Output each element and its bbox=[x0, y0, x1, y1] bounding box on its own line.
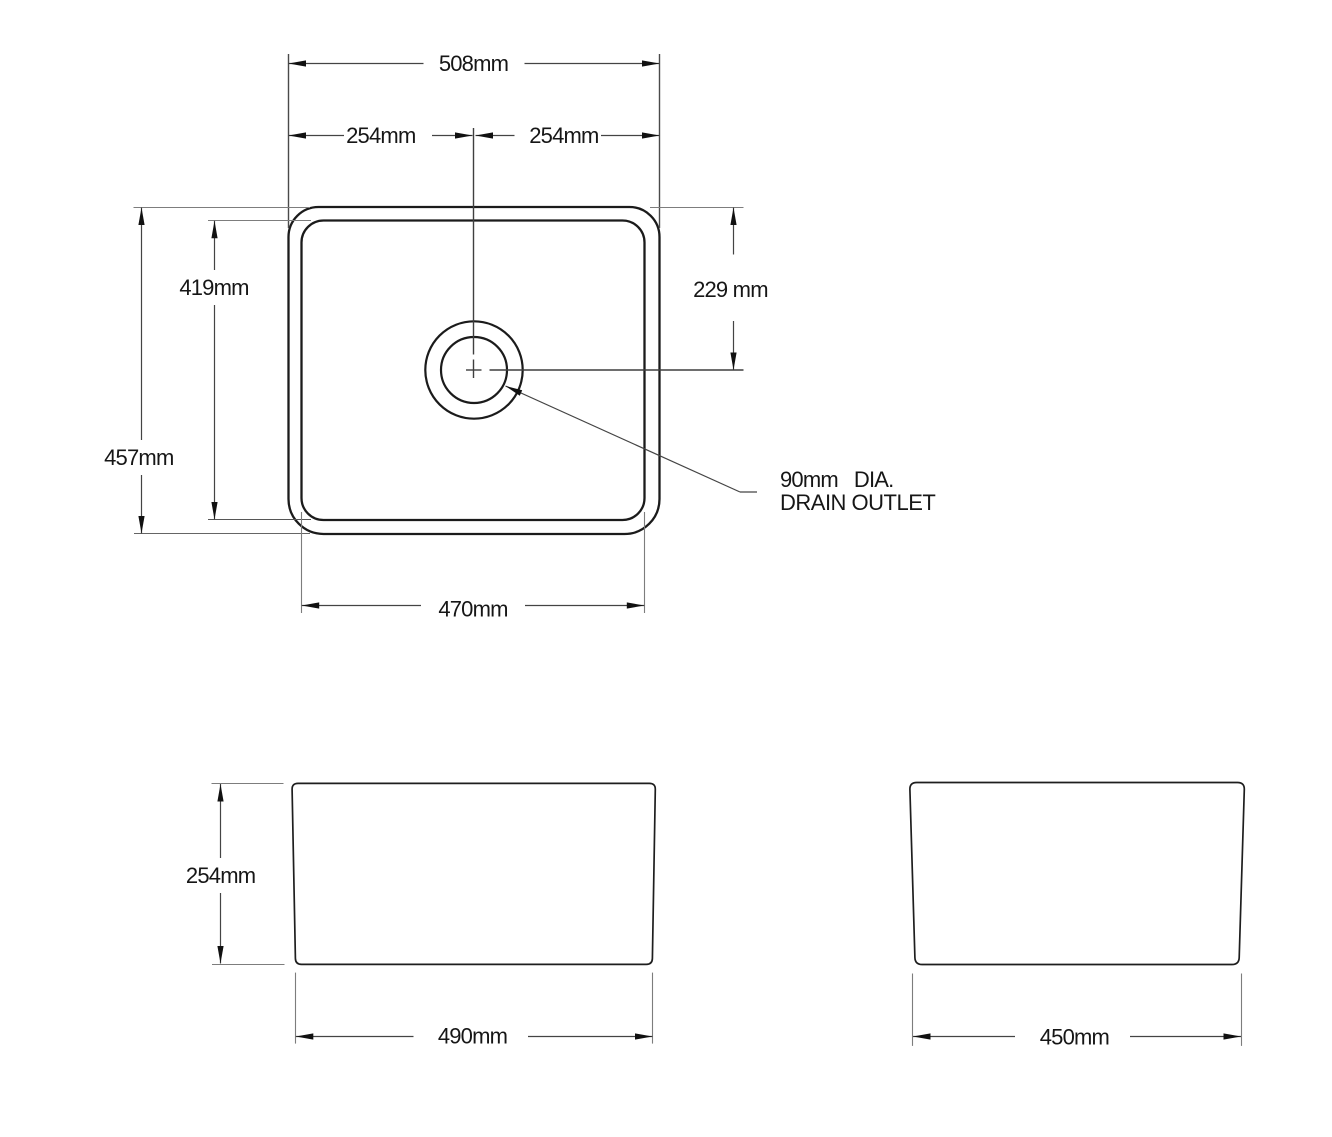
svg-text:508mm: 508mm bbox=[439, 51, 508, 76]
svg-text:419mm: 419mm bbox=[179, 275, 248, 300]
svg-text:DRAIN OUTLET: DRAIN OUTLET bbox=[780, 490, 935, 515]
svg-text:90mm DIA.: 90mm DIA. bbox=[780, 467, 893, 492]
svg-text:490mm: 490mm bbox=[438, 1024, 507, 1049]
svg-text:457mm: 457mm bbox=[104, 445, 173, 470]
svg-text:254mm: 254mm bbox=[346, 123, 415, 148]
svg-text:229 mm: 229 mm bbox=[693, 277, 768, 302]
svg-text:470mm: 470mm bbox=[438, 597, 507, 622]
svg-text:450mm: 450mm bbox=[1040, 1024, 1109, 1049]
svg-text:254mm: 254mm bbox=[529, 123, 598, 148]
svg-text:254mm: 254mm bbox=[186, 863, 255, 888]
